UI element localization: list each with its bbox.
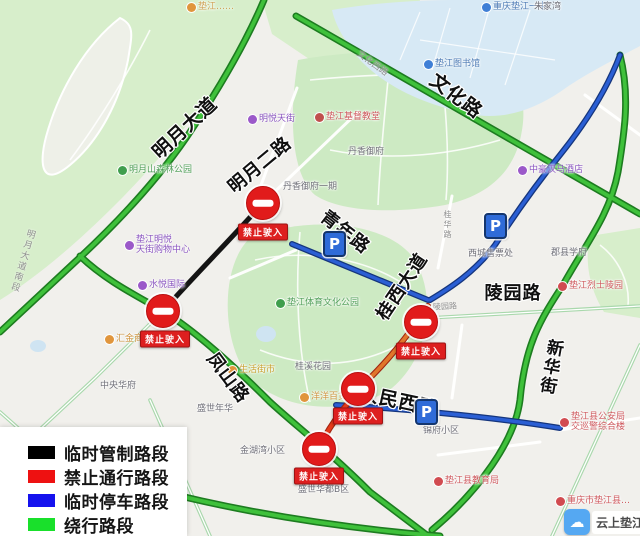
poi-dianjiang-county[interactable]: 重庆市垫江县… bbox=[556, 496, 630, 506]
no-entry-badge: 禁止驶入 bbox=[238, 224, 288, 241]
shop-icon[interactable] bbox=[187, 3, 196, 12]
poi-department-store[interactable]: 洋洋百货 bbox=[300, 392, 347, 402]
poi-zhujiawan: 朱家湾 bbox=[534, 2, 561, 12]
memorial-icon[interactable] bbox=[558, 282, 567, 291]
poi-forest-park[interactable]: 明月山森林公园 bbox=[118, 165, 192, 175]
no-entry-bar-icon bbox=[348, 386, 369, 393]
no-entry-sign-mingyue-erlu[interactable] bbox=[246, 186, 280, 220]
poi-sports-park[interactable]: 垫江体育文化公园 bbox=[276, 298, 359, 308]
road-label-lingyuan: 陵园路 bbox=[485, 279, 542, 305]
poi-xicheng: 西城售票处 bbox=[468, 249, 513, 259]
app-watermark[interactable]: ☁ 云上垫江 bbox=[564, 509, 640, 535]
poi-shopping-center[interactable]: 垫江明悦天街购物中心 bbox=[125, 235, 190, 255]
poi-guixi-garden: 桂溪花园 bbox=[295, 362, 331, 372]
no-entry-sign-fengshan-south[interactable] bbox=[302, 432, 336, 466]
legend-swatch-black bbox=[28, 446, 55, 459]
legend-swatch-red bbox=[28, 470, 55, 483]
poi-zhongyang: 中央华府 bbox=[100, 381, 136, 391]
legend-row-detour: 绕行路段 bbox=[0, 512, 187, 536]
poi-hotel[interactable]: 中豪汉马酒店 bbox=[518, 165, 583, 175]
no-entry-sign-guixi-north[interactable] bbox=[404, 305, 438, 339]
poi-junxian: 郡县学府 bbox=[551, 248, 587, 258]
poi-library[interactable]: 垫江图书馆 bbox=[424, 59, 480, 69]
park-icon[interactable] bbox=[118, 166, 127, 175]
no-entry-bar-icon bbox=[309, 446, 330, 453]
poi-danxiang-2: 丹香御府一期 bbox=[283, 182, 337, 192]
poi-education-bureau[interactable]: 垫江县教育局 bbox=[434, 476, 499, 486]
cloud-icon[interactable]: ☁ bbox=[564, 509, 590, 535]
no-entry-badge: 禁止驶入 bbox=[396, 343, 446, 360]
church-icon[interactable] bbox=[315, 113, 324, 122]
poi-danxiang: 丹香御府 bbox=[348, 147, 384, 157]
no-entry-bar-icon bbox=[153, 308, 174, 315]
library-icon[interactable] bbox=[424, 60, 433, 69]
mall-icon[interactable] bbox=[138, 281, 147, 290]
poi-top-banner[interactable]: 垫江…… bbox=[187, 2, 234, 12]
park-icon[interactable] bbox=[276, 299, 285, 308]
gov-icon[interactable] bbox=[556, 497, 565, 506]
gov-icon[interactable] bbox=[434, 477, 443, 486]
poi-shengshi-nianhua: 盛世年华 bbox=[197, 404, 233, 414]
poi-mingyue-tianjie[interactable]: 明悦天街 bbox=[248, 114, 295, 124]
parking-sign-qingnian[interactable]: P bbox=[323, 231, 346, 257]
no-entry-badge: 禁止驶入 bbox=[140, 331, 190, 348]
legend-row-parking: 临时停车路段 bbox=[0, 488, 187, 512]
poi-jinhuwan: 金湖湾小区 bbox=[240, 446, 285, 456]
legend-row-forbidden: 禁止通行路段 bbox=[0, 464, 187, 488]
no-entry-sign-fengshan-west[interactable] bbox=[146, 294, 180, 328]
no-entry-sign-guixi-south[interactable] bbox=[341, 372, 375, 406]
no-entry-bar-icon bbox=[411, 319, 432, 326]
poi-police[interactable]: 垫江县公安局交巡警综合楼 bbox=[560, 412, 625, 432]
mall-icon[interactable] bbox=[248, 115, 257, 124]
parking-sign-guixi[interactable]: P bbox=[484, 213, 507, 239]
hotel-icon[interactable] bbox=[518, 166, 527, 175]
parking-sign-renmin[interactable]: P bbox=[415, 399, 438, 425]
school-icon[interactable] bbox=[482, 3, 491, 12]
no-entry-badge: 禁止驶入 bbox=[294, 468, 344, 485]
no-entry-bar-icon bbox=[253, 200, 274, 207]
legend-row-control: 临时管制路段 bbox=[0, 440, 187, 464]
watermark-text: 云上垫江 bbox=[592, 511, 640, 534]
legend-swatch-green bbox=[28, 518, 55, 531]
shop-icon[interactable] bbox=[105, 335, 114, 344]
mall-icon[interactable] bbox=[125, 241, 134, 250]
road-label-lingyuan-small: 陵园路 bbox=[433, 300, 458, 312]
poi-shengshi-huadu: 盛世华都B区 bbox=[298, 485, 349, 495]
small-pond bbox=[30, 340, 46, 352]
traffic-control-map: 明月大道南段 桂华路 陵园路 文化西路 重庆垫江一中 朱家湾 垫江图书馆 垫江基… bbox=[0, 0, 640, 536]
park-pond bbox=[256, 326, 276, 342]
no-entry-badge: 禁止驶入 bbox=[333, 408, 383, 425]
poi-jinfu: 锦府小区 bbox=[423, 426, 459, 436]
poi-church[interactable]: 垫江基督教堂 bbox=[315, 112, 380, 122]
poi-shuiyue[interactable]: 水悦国际 bbox=[138, 280, 185, 290]
gov-icon[interactable] bbox=[560, 418, 569, 427]
shop-icon[interactable] bbox=[300, 393, 309, 402]
poi-martyrs-cemetery[interactable]: 垫江烈士陵园 bbox=[558, 281, 623, 291]
legend-panel: 临时管制路段 禁止通行路段 临时停车路段 绕行路段 bbox=[0, 427, 187, 536]
road-label-guihua: 桂华路 bbox=[442, 210, 453, 240]
legend-swatch-blue bbox=[28, 494, 55, 507]
